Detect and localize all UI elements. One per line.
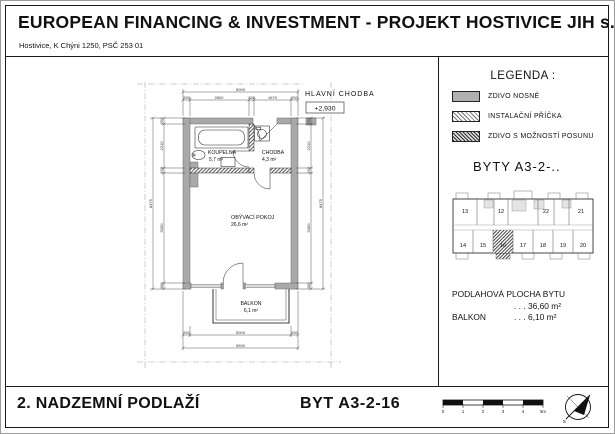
scale-tick-labels: 0 1 2 3 4 5m	[442, 409, 547, 414]
legend-swatch-hatch-dark	[452, 131, 480, 142]
unit-series-label: BYTY A3-2-..	[473, 159, 607, 174]
svg-text:20: 20	[580, 243, 586, 249]
info-panel: LEGENDA : ZDIVO NOSNÉ INSTALAČNÍ PŘÍČKA …	[439, 57, 607, 385]
drawing-sheet: EUROPEAN FINANCING & INVESTMENT - PROJEK…	[0, 0, 615, 434]
legend-label: ZDIVO S MOŽNOSTÍ POSUNU	[488, 133, 594, 140]
keyplan-highlight-unit	[493, 230, 513, 253]
svg-text:250: 250	[291, 330, 298, 335]
balcony-area-label: BALKON	[452, 312, 514, 322]
svg-text:5060: 5060	[306, 223, 311, 233]
balcony-door-arc	[223, 263, 243, 283]
hall-door-arc	[254, 173, 270, 189]
svg-text:5m: 5m	[540, 409, 546, 414]
svg-text:250: 250	[159, 117, 164, 124]
svg-text:+2,930: +2,930	[315, 105, 336, 112]
fixtures	[192, 126, 270, 167]
legend-swatch-solid	[452, 91, 480, 102]
balcony-area-value: . . . 6,10 m²	[514, 312, 556, 322]
svg-text:21: 21	[578, 209, 584, 215]
svg-text:5000: 5000	[236, 330, 246, 335]
svg-text:2210: 2210	[159, 141, 164, 151]
legend-item-bearing: ZDIVO NOSNÉ	[452, 91, 607, 102]
room-bathroom-label: KOUPELNA	[208, 150, 237, 156]
room-living-label: OBÝVACÍ POKOJ	[231, 214, 275, 221]
company-title: EUROPEAN FINANCING & INVESTMENT - PROJEK…	[18, 12, 615, 33]
unit-title: BYT A3-2-16	[300, 395, 400, 413]
floor-title: 2. NADZEMNÍ PODLAŽÍ	[17, 395, 200, 413]
floor-area-label: PODLAHOVÁ PLOCHA BYTU	[452, 289, 565, 299]
bathtub-inner-icon	[199, 130, 245, 145]
windows	[191, 284, 275, 287]
legend-label: INSTALAČNÍ PŘÍČKA	[488, 113, 562, 120]
svg-text:150: 150	[159, 166, 164, 173]
svg-text:1: 1	[462, 409, 465, 414]
svg-text:12: 12	[498, 209, 504, 215]
svg-text:150: 150	[248, 95, 255, 100]
svg-text:16: 16	[500, 243, 506, 249]
legend-item-movable: ZDIVO S MOŽNOSTÍ POSUNU	[452, 131, 607, 142]
room-hall-label: CHODBA	[262, 150, 285, 156]
area-summary: PODLAHOVÁ PLOCHA BYTU . . . 36,60 m² BAL…	[439, 289, 607, 322]
svg-text:2800: 2800	[215, 95, 225, 100]
room-balcony-area: 6,1 m²	[244, 308, 259, 314]
svg-text:400: 400	[159, 282, 164, 289]
level-mark: +2,930	[306, 102, 344, 113]
legend-label: ZDIVO NOSNÉ	[488, 93, 540, 100]
svg-text:22: 22	[543, 209, 549, 215]
svg-text:5000: 5000	[236, 87, 246, 92]
svg-text:15: 15	[480, 243, 486, 249]
room-balcony-label: BALKON	[240, 301, 261, 307]
svg-text:3: 3	[502, 409, 505, 414]
floor-plan-drawing: 5000 250 2800 150 1670 250 8475 250 2210…	[9, 56, 437, 386]
shaft	[190, 162, 198, 187]
svg-text:0: 0	[442, 409, 445, 414]
north-arrow-icon: s	[557, 388, 599, 430]
corridor-label: HLAVNÍ CHODBA	[305, 89, 375, 98]
svg-text:17: 17	[520, 243, 526, 249]
svg-text:250: 250	[306, 117, 311, 124]
svg-text:8475: 8475	[148, 198, 153, 208]
room-bathroom-area: 5,7 m²	[209, 157, 224, 163]
footer-divider	[5, 386, 609, 387]
svg-text:5500: 5500	[236, 343, 246, 348]
svg-text:150: 150	[306, 166, 311, 173]
north-label: s	[563, 419, 566, 425]
svg-text:250: 250	[291, 95, 298, 100]
room-hall-area: 4,3 m²	[262, 157, 277, 163]
svg-text:19: 19	[560, 243, 566, 249]
svg-text:400: 400	[306, 282, 311, 289]
svg-text:2210: 2210	[306, 141, 311, 151]
svg-text:2: 2	[482, 409, 485, 414]
scale-bar: 0 1 2 3 4 5m	[439, 397, 551, 419]
svg-text:4: 4	[522, 409, 525, 414]
svg-text:1670: 1670	[268, 95, 278, 100]
svg-text:8475: 8475	[318, 198, 323, 208]
svg-text:14: 14	[460, 243, 466, 249]
company-address: Hostivice, K Chýni 1250, PSČ 253 01	[19, 41, 143, 50]
room-living-area: 26,6 m²	[231, 222, 248, 228]
floor-area-value: . . . 36,60 m²	[514, 301, 561, 311]
legend-item-partition: INSTALAČNÍ PŘÍČKA	[452, 111, 607, 122]
building-key-plan: 13 12 22 21 14 15 16 17 18 19 20	[450, 185, 596, 269]
faucet-icon	[193, 154, 195, 156]
svg-text:5090: 5090	[159, 223, 164, 233]
svg-text:250: 250	[183, 95, 190, 100]
legend-swatch-hatch-light	[452, 111, 480, 122]
svg-text:13: 13	[462, 209, 468, 215]
svg-text:18: 18	[540, 243, 546, 249]
legend-title: LEGENDA :	[439, 70, 607, 82]
svg-text:250: 250	[183, 330, 190, 335]
